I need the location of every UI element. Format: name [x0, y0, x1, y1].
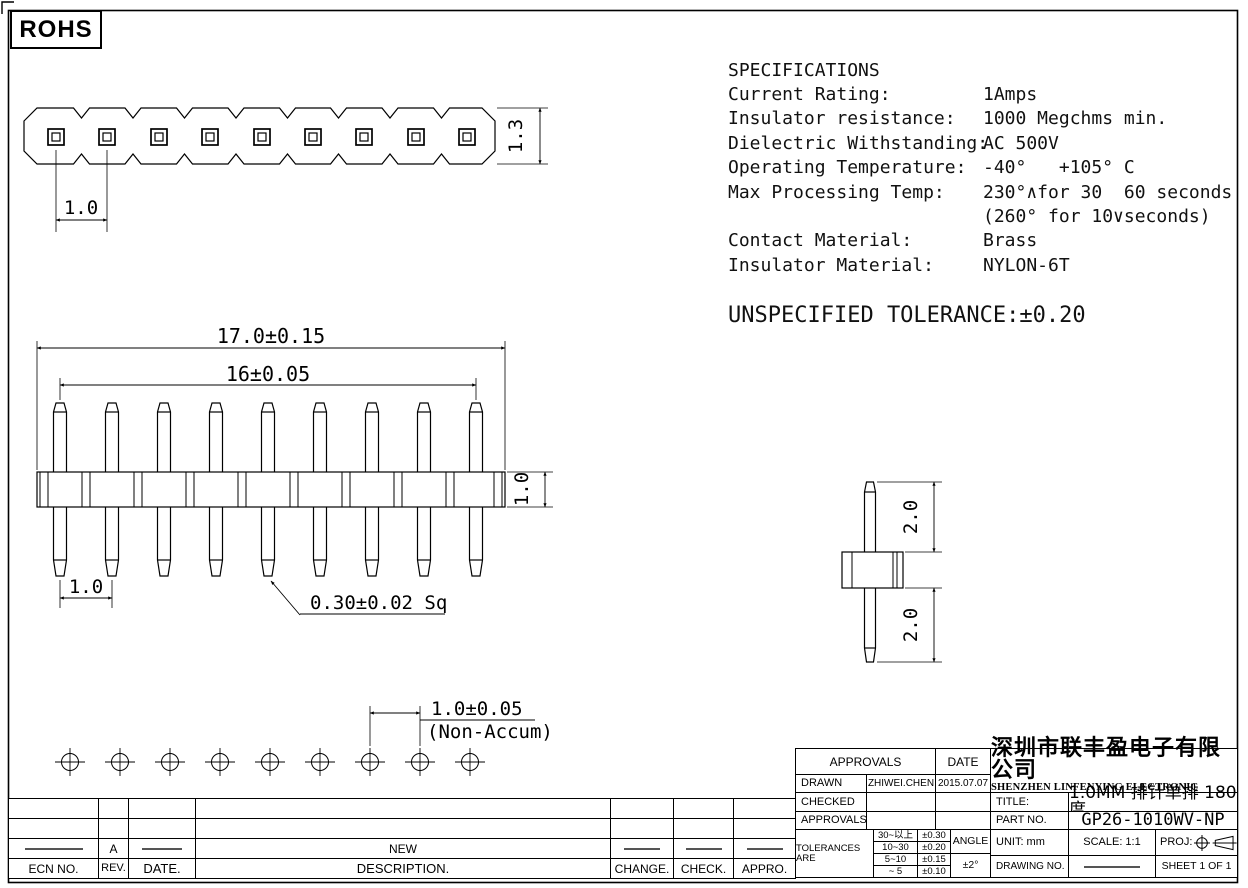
revision-header-date: DATE.	[128, 858, 196, 879]
revision-header-change: CHANGE.	[610, 858, 674, 879]
angle-value-cell: ±2°	[950, 853, 991, 878]
spec-row: Current Rating:1Amps	[728, 82, 1248, 106]
unit-cell: UNIT: mm	[990, 829, 1069, 856]
revision-rev-cell: A	[98, 838, 129, 859]
revision-header-check: CHECK.	[673, 858, 734, 879]
dim-top-pitch: 1.0	[64, 197, 98, 219]
approvals-name-cell	[866, 811, 936, 830]
top-view	[24, 108, 495, 164]
approvals-label-cell: APPROVALS	[795, 811, 867, 830]
revision-cell	[128, 798, 196, 819]
front-view	[37, 403, 505, 576]
dim-top-height: 1.3	[505, 119, 527, 153]
revision-header-rev: REV.	[98, 858, 129, 879]
drawn-label-cell: DRAWN	[795, 774, 867, 793]
revision-header-ecn: ECN NO.	[8, 858, 99, 879]
approvals-date-cell	[935, 811, 991, 830]
dim-front-span: 16±0.05	[226, 362, 310, 386]
spec-row: Operating Temperature:-40° +105° C	[728, 156, 1248, 180]
sheet-cell: SHEET 1 OF 1	[1155, 855, 1238, 878]
tolerance-value-cell: ±0.10	[917, 865, 951, 878]
revision-cell	[733, 818, 796, 839]
revision-header-appro: APPRO.	[733, 858, 796, 879]
tolerances-label-cell: TOLERANCES ARE	[795, 829, 874, 878]
checked-label-cell: CHECKED	[795, 792, 867, 812]
revision-cell	[128, 818, 196, 839]
dim-side-top: 2.0	[900, 500, 922, 534]
revision-cell	[673, 818, 734, 839]
revision-cell	[98, 818, 129, 839]
spec-row: Insulator Material:NYLON-6T	[728, 253, 1248, 277]
revision-appro-cell	[733, 838, 796, 859]
revision-check-cell	[673, 838, 734, 859]
revision-cell	[195, 798, 611, 819]
date-header-cell: DATE	[935, 748, 991, 775]
drawn-date-cell: 2015.07.07	[935, 774, 991, 793]
part-no-label-cell: PART NO.	[990, 811, 1069, 830]
rohs-badge: ROHS	[10, 10, 102, 49]
drawing-no-value-cell	[1068, 855, 1156, 878]
revision-ecn-cell	[8, 838, 99, 859]
spec-row: (260° for 10∨seconds)	[728, 204, 1248, 228]
top-view-dimensions	[56, 108, 548, 232]
front-view-body	[37, 472, 505, 507]
spec-row: Insulator resistance:1000 Megchms min.	[728, 107, 1248, 131]
specifications-block: SPECIFICATIONS Current Rating:1Amps Insu…	[728, 58, 1248, 278]
revision-cell	[8, 818, 99, 839]
dim-front-overall: 17.0±0.15	[217, 324, 325, 348]
drawing-no-dash	[1084, 866, 1140, 868]
company-name-cn: 深圳市联丰盈电子有限公司	[991, 738, 1237, 782]
revision-change-cell	[610, 838, 674, 859]
revision-cell	[733, 798, 796, 819]
revision-date-cell	[128, 838, 196, 859]
checked-name-cell	[866, 792, 936, 812]
spec-row: Max Processing Temp:230°∧for 30 60 secon…	[728, 180, 1248, 204]
approvals-header-cell: APPROVALS	[795, 748, 936, 775]
projection-label: PROJ:	[1160, 837, 1192, 848]
spec-row: Contact Material:Brass	[728, 229, 1248, 253]
checked-date-cell	[935, 792, 991, 812]
dim-pin-square: 0.30±0.02 Sq	[310, 592, 447, 614]
revision-description-cell: NEW	[195, 838, 611, 859]
drawing-sheet: 1.0 1.3	[0, 0, 1248, 888]
third-angle-projection-icon	[1194, 832, 1237, 854]
rohs-label: ROHS	[19, 16, 92, 44]
side-view	[842, 482, 903, 662]
drawing-no-label-cell: DRAWING NO.	[990, 855, 1069, 878]
revision-cell	[98, 798, 129, 819]
specs-title: SPECIFICATIONS	[728, 60, 983, 81]
scale-cell: SCALE: 1:1	[1068, 829, 1156, 856]
angle-label-cell: ANGLE	[950, 829, 991, 854]
revision-cell	[8, 798, 99, 819]
dim-bottom-note: (Non-Accum)	[427, 721, 553, 743]
drawn-name-cell: ZHIWEI.CHEN	[866, 774, 936, 793]
dim-front-body-height: 1.0	[511, 472, 533, 506]
revision-cell	[610, 818, 674, 839]
revision-header-description: DESCRIPTION.	[195, 858, 611, 879]
side-view-body	[842, 552, 903, 588]
part-no-value-cell: GP26-1010WV-NP	[1068, 811, 1238, 830]
title-value-cell: 1.0MM 排针单排 180度	[1068, 792, 1238, 812]
projection-cell: PROJ:	[1155, 829, 1238, 856]
dim-bottom-pitch: 1.0±0.05	[431, 698, 523, 720]
title-label-cell: TITLE:	[990, 792, 1069, 812]
spec-row: Dielectric Withstanding:AC 500V	[728, 131, 1248, 155]
revision-cell	[195, 818, 611, 839]
dim-side-bottom: 2.0	[900, 608, 922, 642]
bottom-view	[55, 748, 485, 776]
dim-front-pitch: 1.0	[69, 576, 103, 598]
specs-title-row: SPECIFICATIONS	[728, 58, 1248, 82]
revision-cell	[673, 798, 734, 819]
revision-cell	[610, 798, 674, 819]
tolerance-range-cell: ~ 5	[873, 865, 918, 878]
unspecified-tolerance-note: UNSPECIFIED TOLERANCE:±0.20	[728, 303, 1086, 328]
